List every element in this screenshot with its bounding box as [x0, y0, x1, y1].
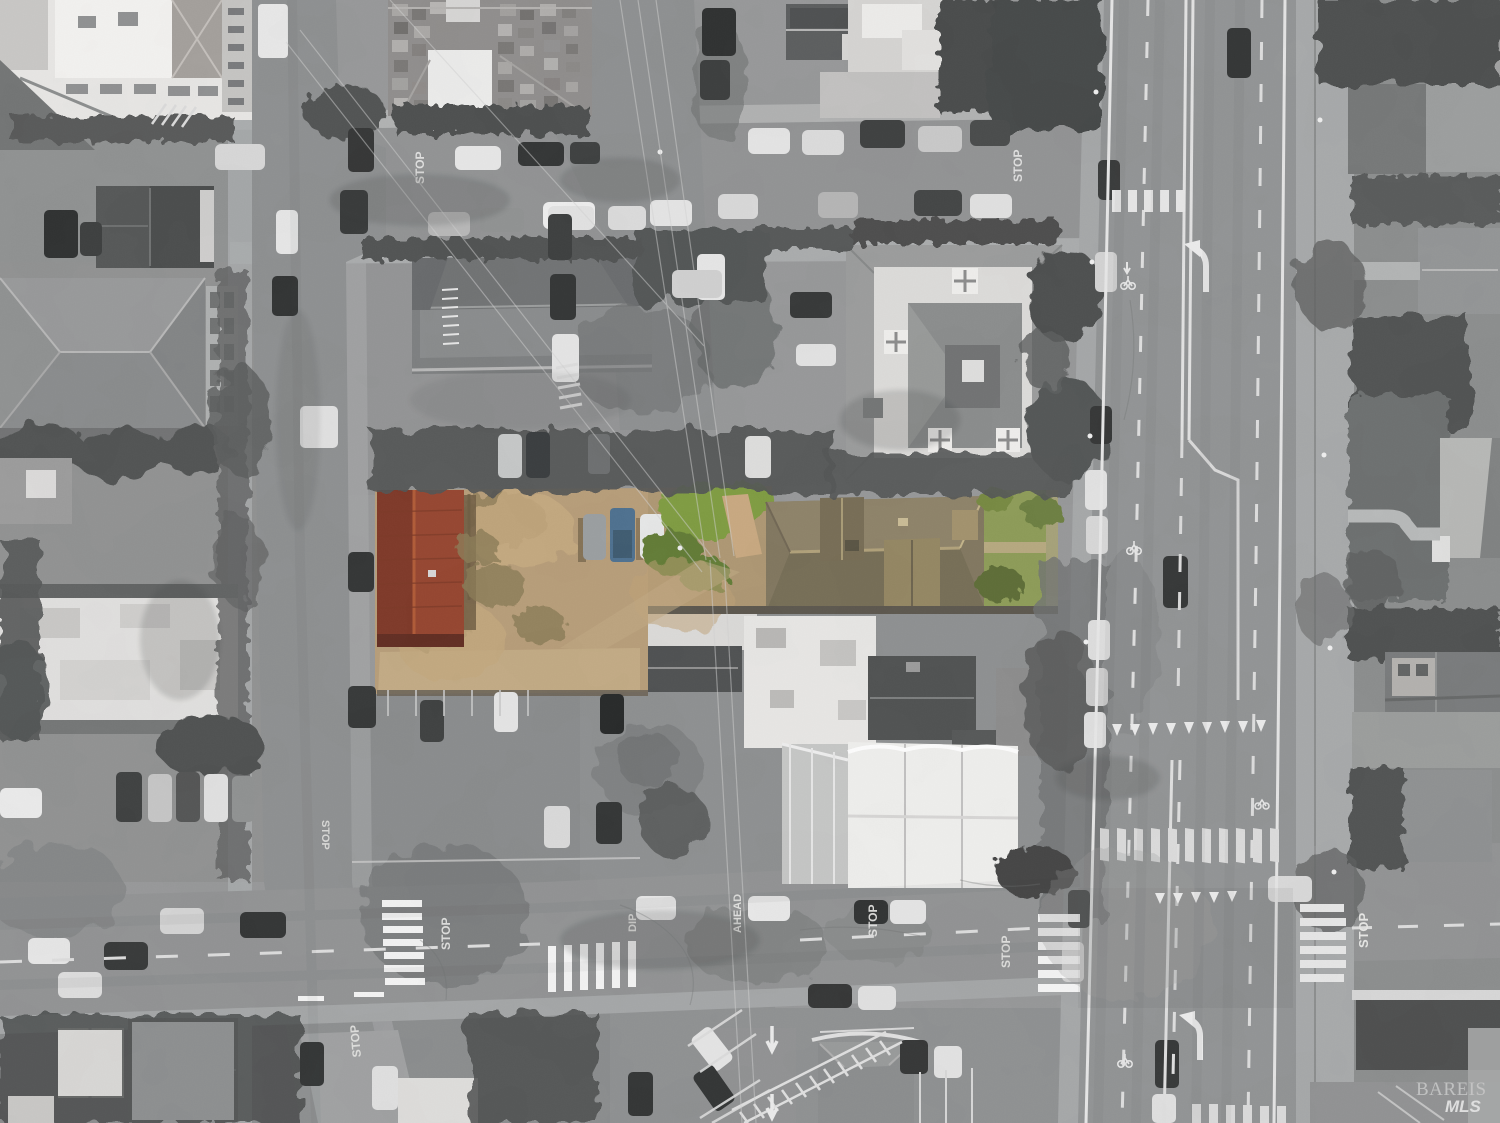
svg-text:MLS: MLS	[1445, 1097, 1482, 1116]
